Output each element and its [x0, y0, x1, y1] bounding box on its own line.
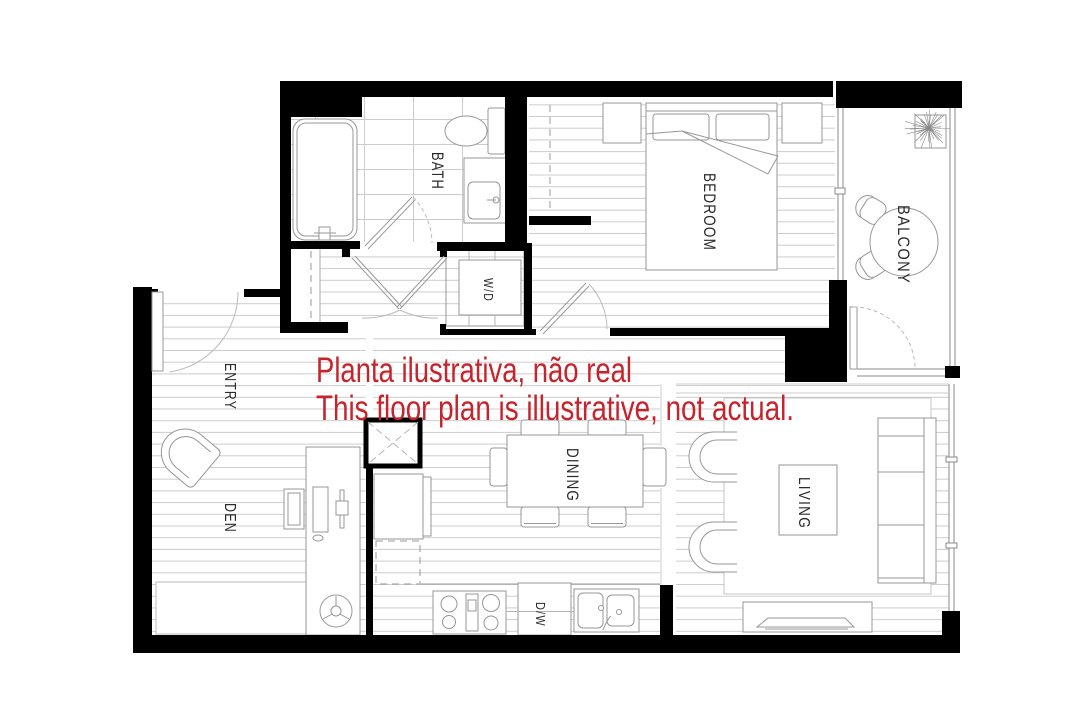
svg-text:BEDROOM: BEDROOM: [700, 173, 719, 251]
svg-text:BALCONY: BALCONY: [894, 205, 913, 284]
svg-text:DEN: DEN: [221, 503, 238, 533]
svg-text:Planta ilustrativa, não real: Planta ilustrativa, não real: [316, 351, 632, 390]
svg-text:This floor plan is illustrativ: This floor plan is illustrative, not act…: [316, 389, 794, 428]
svg-text:DINING: DINING: [563, 448, 582, 502]
svg-text:D/W: D/W: [533, 602, 548, 627]
svg-text:ENTRY: ENTRY: [221, 363, 238, 410]
svg-text:LIVING: LIVING: [795, 477, 812, 529]
svg-text:W/D: W/D: [481, 278, 496, 302]
svg-text:BATH: BATH: [428, 152, 447, 190]
